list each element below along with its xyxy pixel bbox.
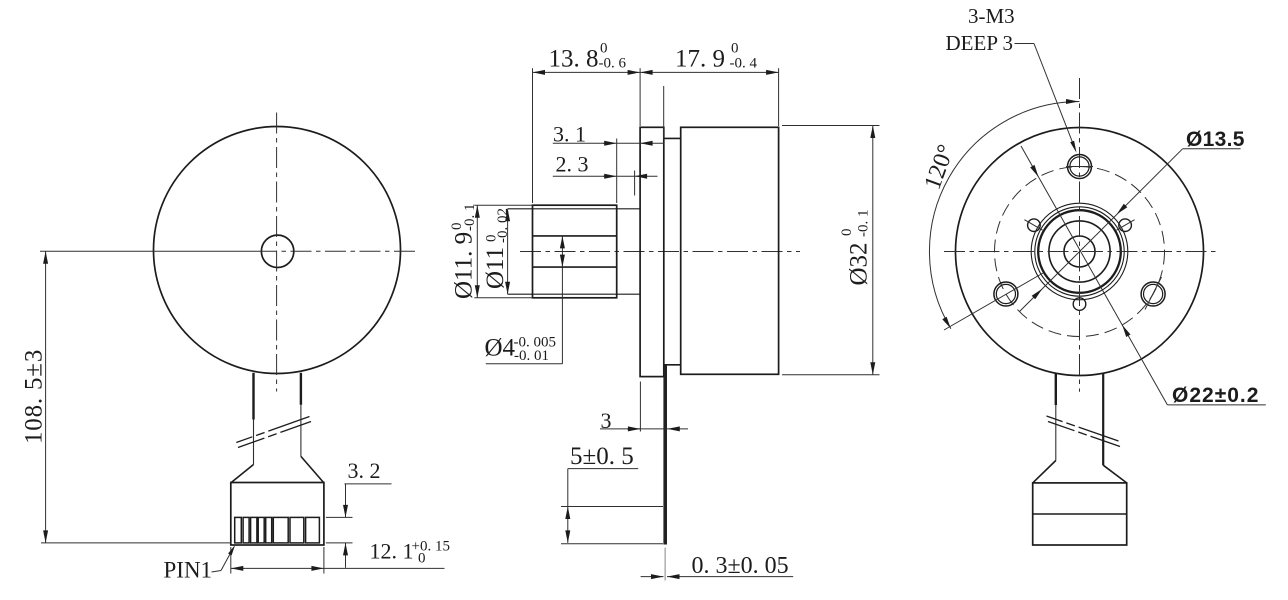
svg-text:13. 8: 13. 8	[549, 45, 599, 72]
svg-text:Ø4: Ø4	[485, 335, 516, 362]
svg-text:108. 5±3: 108. 5±3	[21, 349, 48, 444]
svg-text:0: 0	[731, 40, 739, 56]
svg-text:3. 1: 3. 1	[553, 122, 586, 147]
svg-text:0: 0	[839, 229, 855, 237]
svg-text:PIN1: PIN1	[164, 558, 213, 583]
svg-text:DEEP 3: DEEP 3	[946, 31, 1013, 55]
svg-text:0: 0	[418, 551, 426, 567]
svg-text:3. 2: 3. 2	[348, 458, 381, 483]
svg-text:-0. 6: -0. 6	[599, 55, 627, 71]
svg-text:Ø32: Ø32	[846, 242, 873, 285]
svg-text:Ø13.5: Ø13.5	[1186, 128, 1245, 151]
svg-text:-0. 01: -0. 01	[514, 348, 549, 364]
svg-text:3: 3	[601, 408, 612, 433]
svg-text:12. 1: 12. 1	[370, 539, 414, 564]
svg-text:Ø22±0.2: Ø22±0.2	[1172, 384, 1259, 407]
svg-text:0: 0	[600, 40, 608, 56]
svg-text:0. 3±0. 05: 0. 3±0. 05	[692, 553, 789, 579]
svg-text:5±0. 5: 5±0. 5	[570, 443, 634, 470]
svg-text:Ø11. 9: Ø11. 9	[451, 232, 478, 299]
svg-text:17. 9: 17. 9	[675, 45, 725, 72]
svg-text:-0. 4: -0. 4	[730, 55, 758, 71]
svg-text:Ø11: Ø11	[482, 247, 509, 289]
svg-text:2. 3: 2. 3	[556, 152, 589, 177]
svg-text:-0. 1: -0. 1	[856, 210, 872, 238]
svg-text:-0. 02: -0. 02	[495, 208, 511, 243]
svg-text:3-M3: 3-M3	[968, 4, 1015, 28]
svg-text:-0. 1: -0. 1	[462, 204, 478, 232]
